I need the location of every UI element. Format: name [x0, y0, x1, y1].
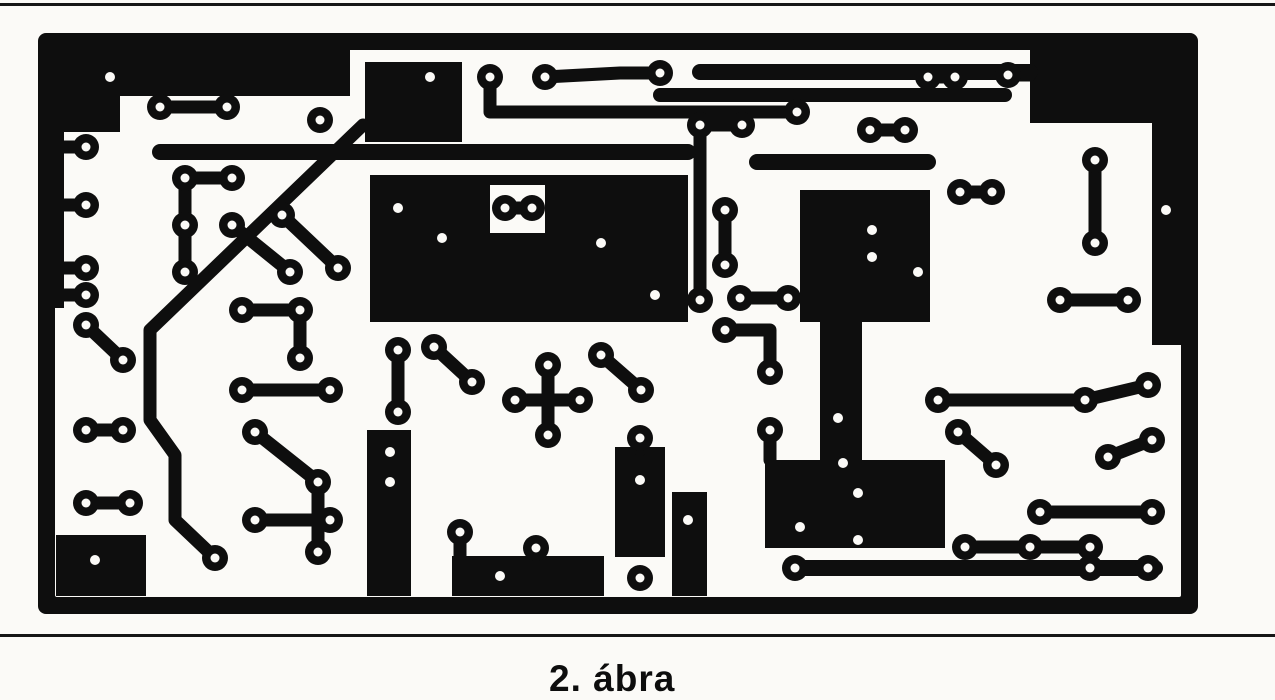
pcb-artwork	[0, 0, 1275, 678]
figure-caption: 2. ábra	[549, 658, 675, 700]
bottom-rule	[0, 634, 1275, 637]
